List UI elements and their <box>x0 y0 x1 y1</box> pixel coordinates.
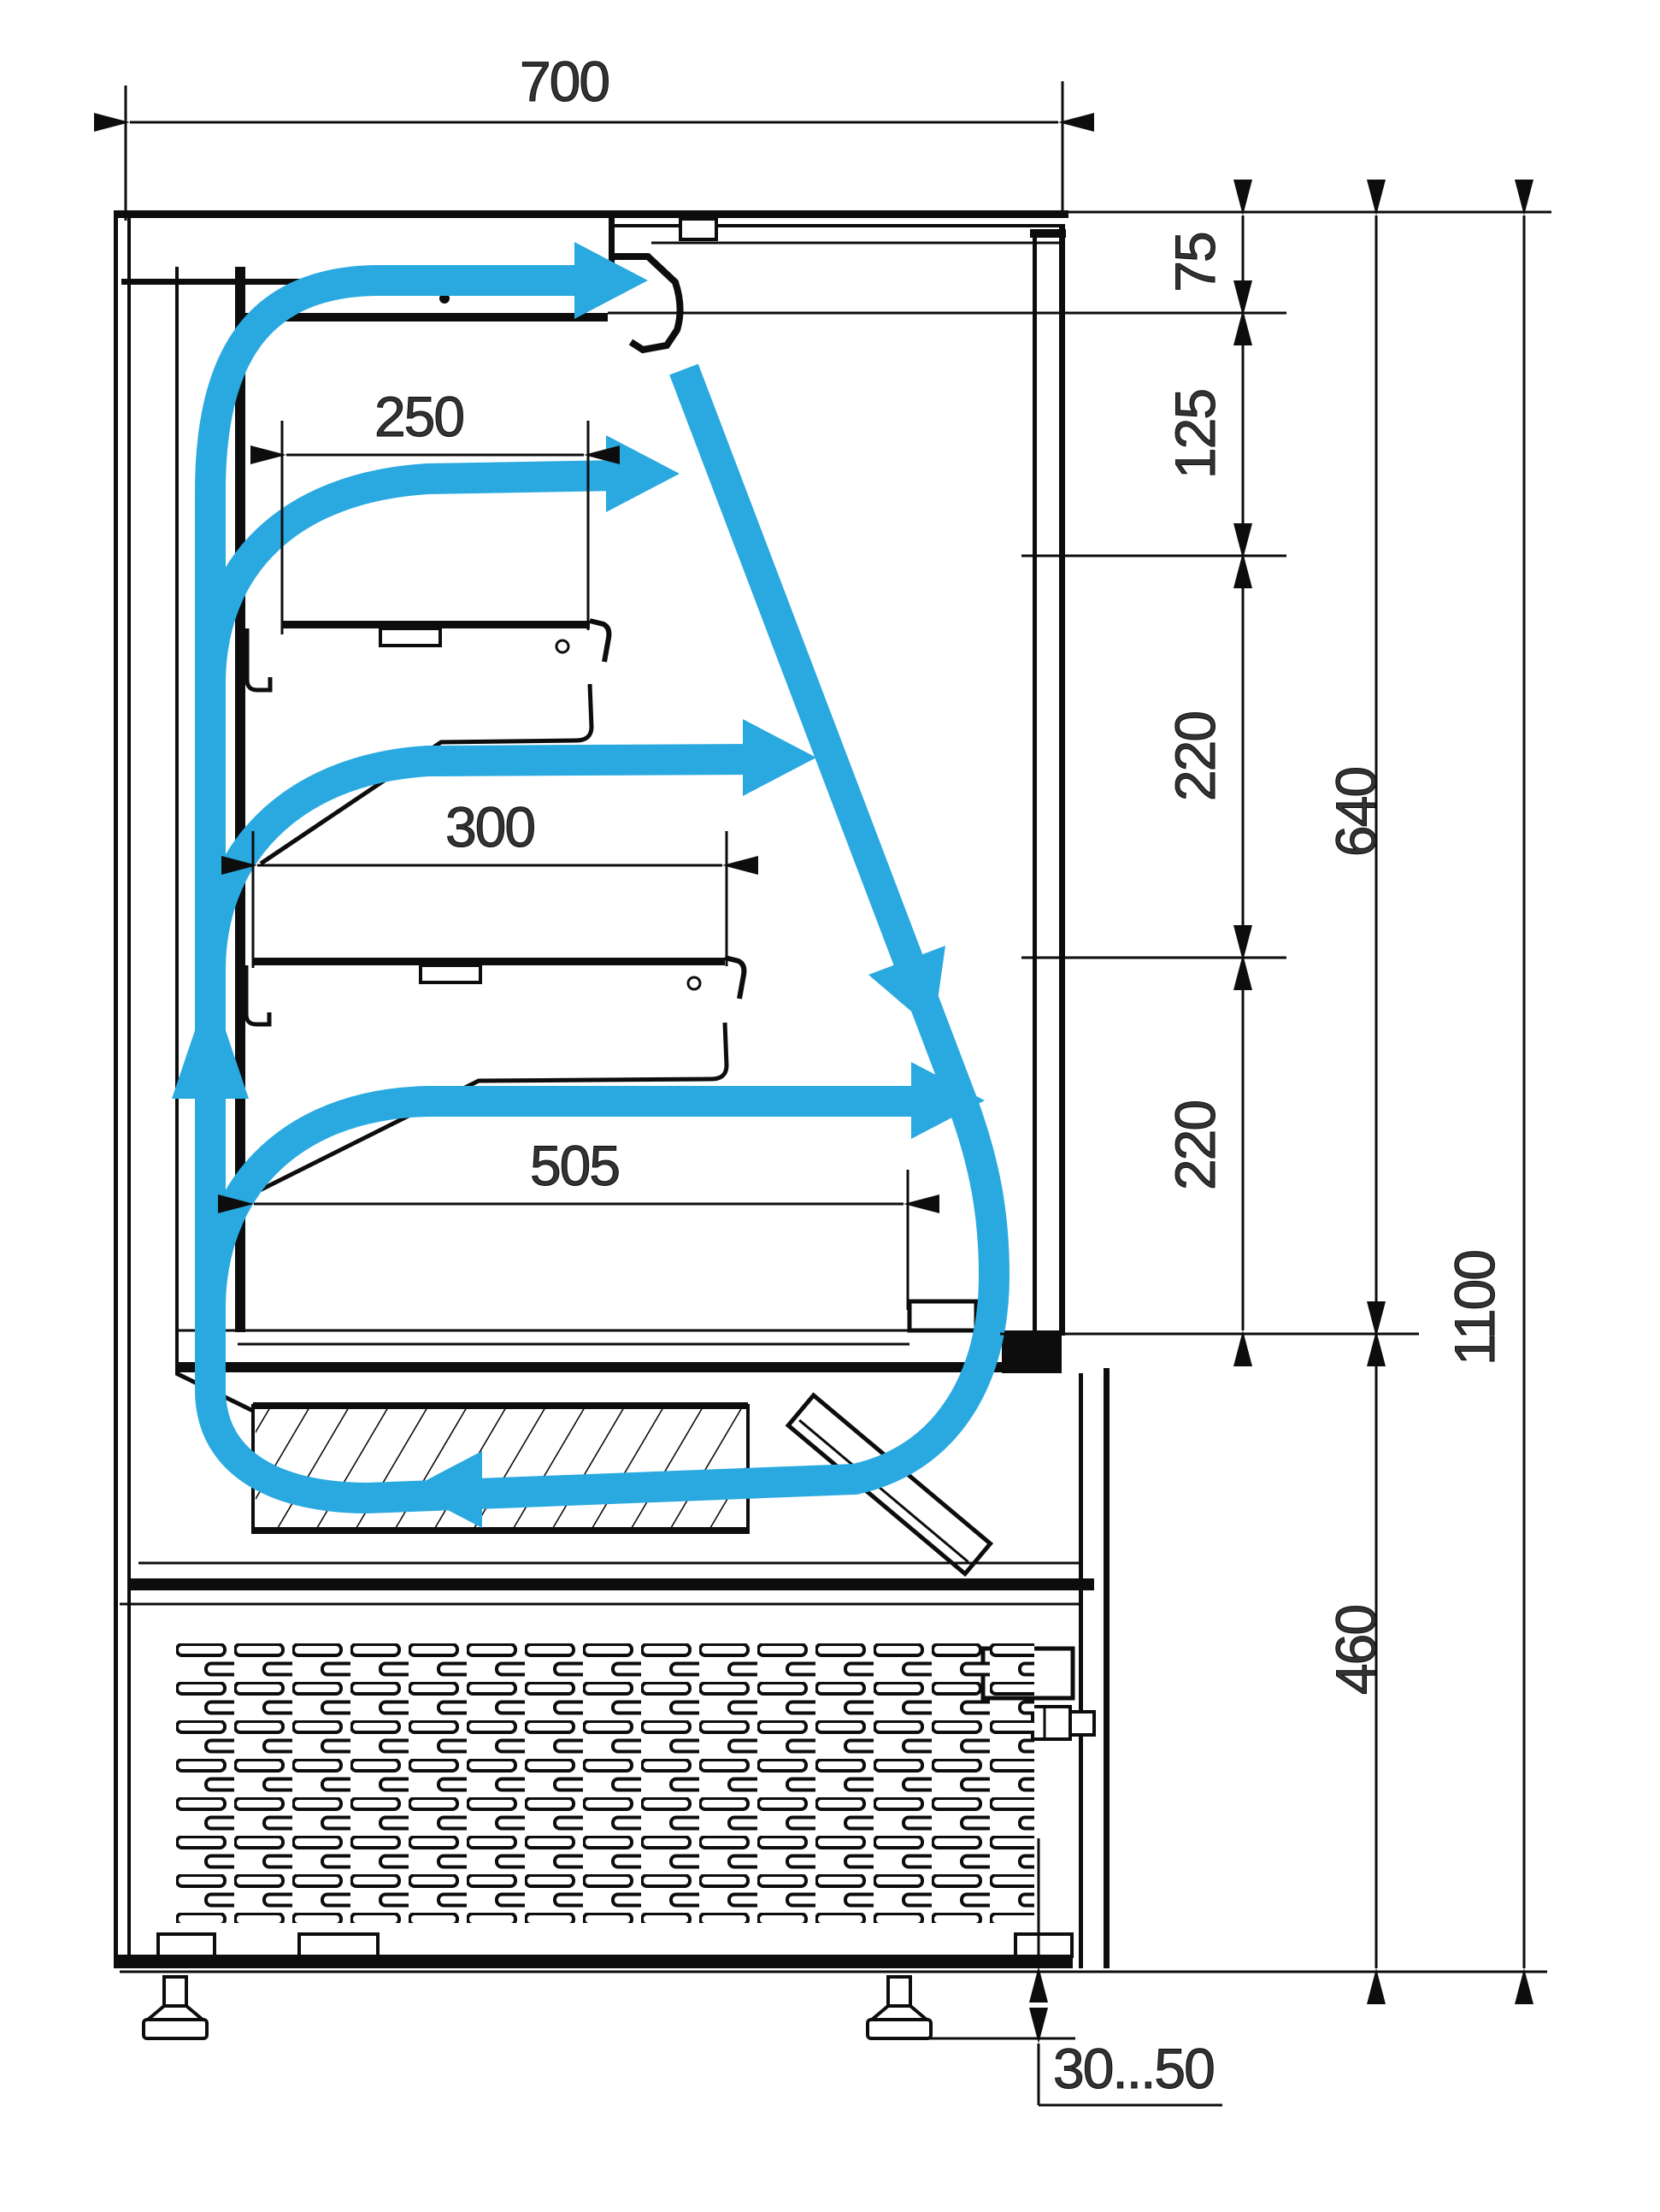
deck-return-grid <box>909 1301 976 1330</box>
top-panel <box>114 210 1068 218</box>
dim-text-1100: 1100 <box>1443 1251 1506 1366</box>
adjustable-foot-right <box>868 1977 931 2038</box>
airflow-diagram <box>172 242 994 1528</box>
drawing-canvas: 700 250 300 505 <box>0 0 1660 2212</box>
display-deck <box>176 1301 1062 1373</box>
shelf-1 <box>247 621 609 864</box>
shelf-2 <box>246 958 744 1195</box>
dim-text-300: 300 <box>445 795 534 858</box>
dim-text-220b: 220 <box>1163 1101 1227 1190</box>
shelf-2-clip <box>421 965 480 982</box>
outer-back-wall <box>114 214 118 1968</box>
evaporator-hatched-block <box>197 1402 821 1534</box>
dim-column-640-460: 640 460 <box>1324 215 1387 1968</box>
dim-text-125: 125 <box>1163 390 1227 479</box>
dim-text-75: 75 <box>1163 233 1227 292</box>
ventilation-grille <box>120 1604 1079 1923</box>
dim-text-460: 460 <box>1324 1606 1387 1695</box>
shelf-2-plate <box>253 958 725 965</box>
airflow-main-loop <box>210 369 994 1498</box>
dim-text-700: 700 <box>520 50 609 113</box>
shelf-1-clip <box>380 628 440 646</box>
dim-column-1100: 1100 <box>1443 215 1524 1968</box>
airflow-shelf1-discharge <box>210 475 619 684</box>
dim-text-505: 505 <box>530 1134 619 1197</box>
lower-front-panel <box>1104 1368 1110 1968</box>
drain-fitting <box>1033 1707 1094 1739</box>
display-case-diagram: 700 250 300 505 <box>0 0 1660 2212</box>
dim-column-shelf-spacing: 75 125 220 220 <box>1163 215 1243 1330</box>
dim-text-640: 640 <box>1324 768 1387 857</box>
airflow-arrow-shelf1 <box>606 435 680 512</box>
dim-700: 700 <box>126 50 1063 221</box>
dim-text-250: 250 <box>374 385 463 448</box>
adjustable-foot-left <box>144 1977 207 2038</box>
dim-text-220a: 220 <box>1163 712 1227 801</box>
front-glass-panel <box>1033 224 1065 1336</box>
base-frame <box>114 1934 1547 1972</box>
dim-text-foot-range: 30...50 <box>1053 2037 1214 2100</box>
dim-505: 505 <box>254 1134 908 1310</box>
shelf-1-price-rail <box>590 621 609 662</box>
